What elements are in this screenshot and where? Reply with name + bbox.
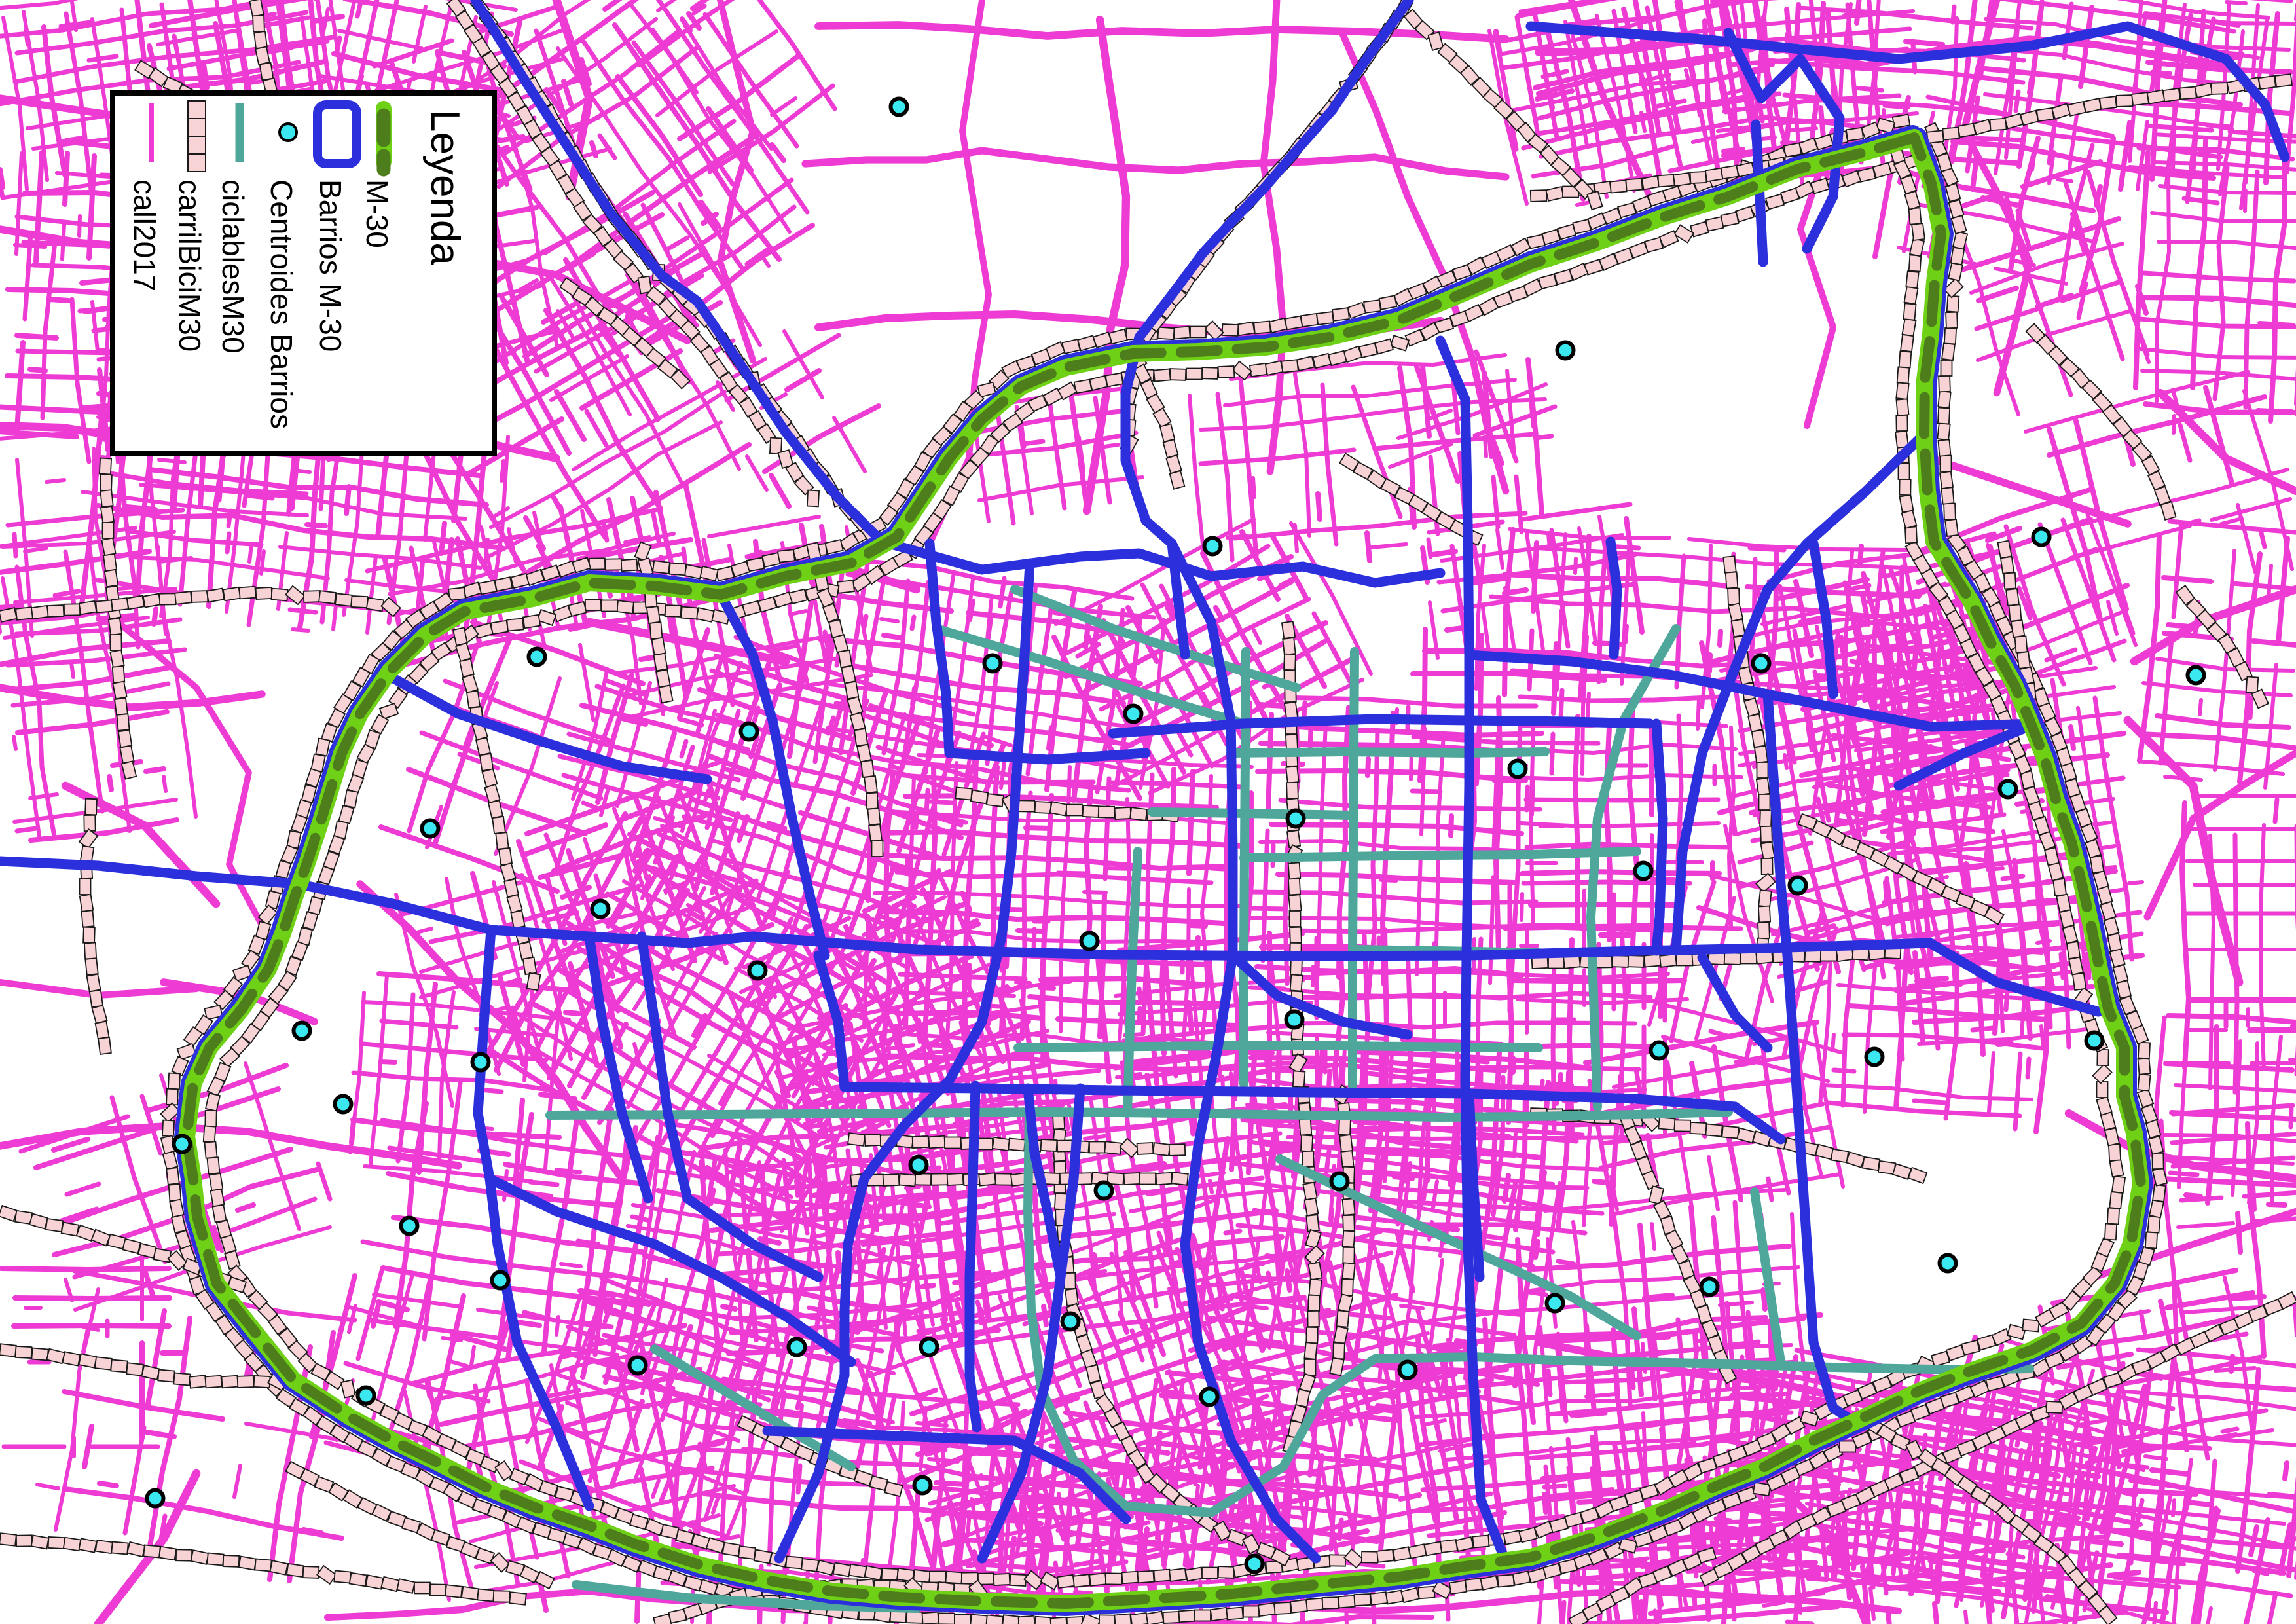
svg-text:M-30: M-30 — [360, 179, 394, 248]
svg-text:Barrios M-30: Barrios M-30 — [314, 179, 348, 352]
svg-text:call2017: call2017 — [128, 179, 162, 291]
svg-text:carrilBiciM30: carrilBiciM30 — [173, 179, 207, 352]
svg-text:Leyenda: Leyenda — [422, 109, 467, 265]
svg-text:Centroides Barrios: Centroides Barrios — [264, 179, 299, 429]
svg-text:ciclablesM30: ciclablesM30 — [216, 179, 250, 354]
